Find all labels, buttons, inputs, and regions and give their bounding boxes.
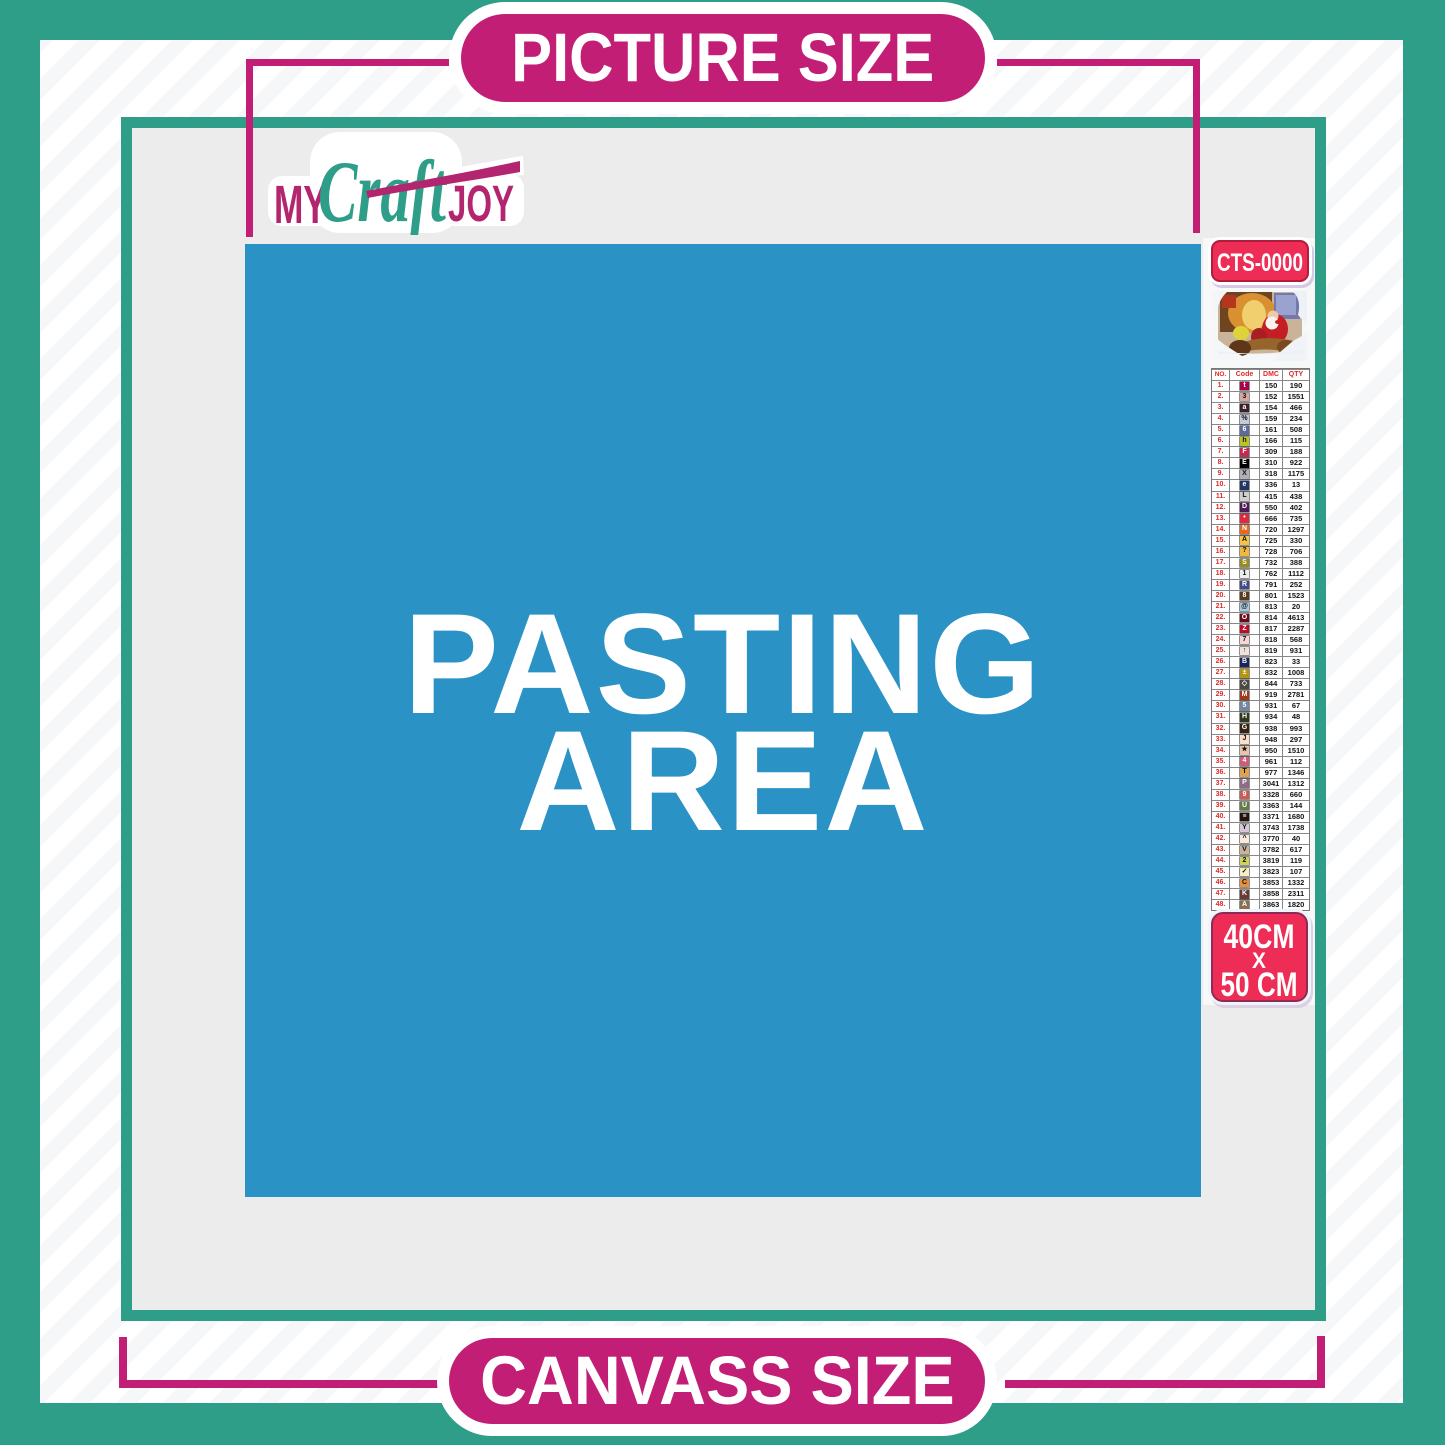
svg-text:JOY: JOY (448, 175, 514, 232)
svg-text:50 CM: 50 CM (1221, 966, 1298, 1000)
svg-text:CTS-0000: CTS-0000 (1217, 249, 1303, 277)
